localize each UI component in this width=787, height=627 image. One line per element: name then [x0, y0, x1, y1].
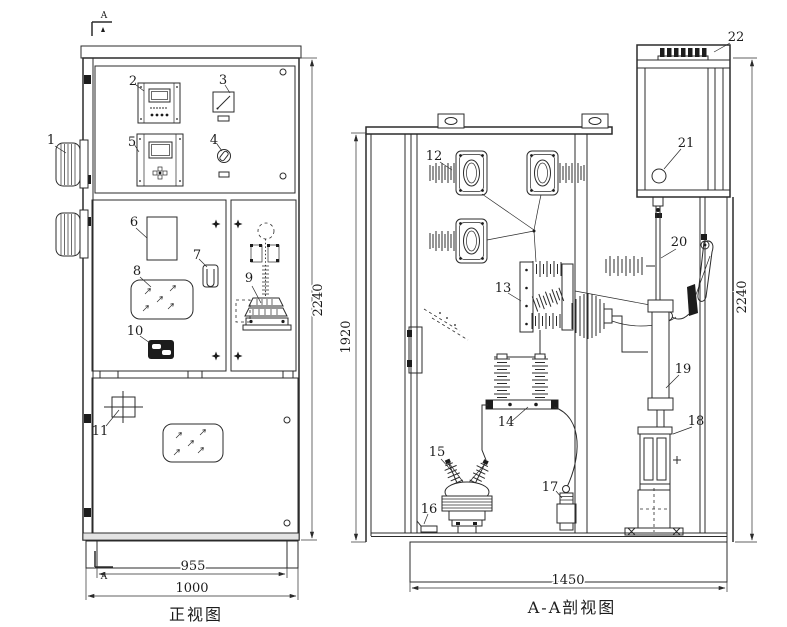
- part-label-3: 3: [219, 73, 227, 88]
- part-label-22: 22: [728, 30, 745, 45]
- part-label-13: 13: [495, 281, 512, 296]
- instrument-panel: [95, 66, 295, 193]
- busbar-14: [482, 330, 577, 487]
- middle-door-right: [231, 200, 296, 371]
- part-label-5: 5: [128, 135, 136, 150]
- svg-text:955: 955: [181, 559, 206, 574]
- part-label-15: 15: [429, 445, 446, 460]
- door-handle-7: [199, 259, 218, 287]
- caption-front-view: 正视图: [169, 605, 223, 624]
- horizontal-bushing: [606, 256, 655, 276]
- svg-text:1920: 1920: [339, 320, 354, 353]
- part-label-21: 21: [678, 136, 695, 151]
- socket-10: [140, 336, 174, 359]
- section-cut-marker-top: A: [92, 11, 112, 36]
- section-view: 21 22 12 13: [339, 30, 757, 617]
- svg-text:2240: 2240: [735, 280, 750, 313]
- dim-front-height: 2240: [301, 58, 326, 540]
- interlock-11: [104, 391, 143, 426]
- voltage-transformer-15: [441, 457, 492, 533]
- section-letter-bottom: A: [100, 572, 108, 582]
- part-label-12: 12: [426, 149, 443, 164]
- surge-arrester-17: [556, 486, 576, 531]
- vent-window-8: [131, 277, 193, 319]
- part-label-4: 4: [210, 133, 218, 148]
- part-label-9: 9: [245, 271, 253, 286]
- relay-device-2: [136, 83, 180, 123]
- control-knob-4: [217, 144, 231, 177]
- vent-window-bottom: [163, 424, 223, 462]
- operating-mechanism-18: [625, 427, 692, 535]
- disconnector-13: [424, 261, 573, 340]
- section-cut-marker-bottom: A: [95, 551, 113, 582]
- drawing-canvas: A A: [0, 0, 787, 627]
- bushing-group-12: [430, 151, 584, 263]
- svg-text:1000: 1000: [175, 581, 208, 596]
- inspection-window-6: [136, 217, 177, 260]
- part-label-18: 18: [688, 414, 705, 429]
- part-label-6: 6: [130, 215, 138, 230]
- part-label-16: 16: [421, 502, 438, 517]
- svg-text:1450: 1450: [551, 573, 584, 588]
- part-label-17: 17: [542, 480, 559, 495]
- part-label-11: 11: [92, 424, 109, 439]
- dim-section-height: 2240: [733, 58, 757, 542]
- switchgear-drawing: A A: [0, 0, 787, 627]
- caption-section-view: A-A剖视图: [527, 598, 617, 617]
- relay-device-5: [134, 134, 183, 186]
- svg-text:2240: 2240: [311, 283, 326, 316]
- part-label-2: 2: [129, 74, 137, 89]
- part-label-19: 19: [675, 362, 692, 377]
- part-label-7: 7: [193, 248, 201, 263]
- part-label-8: 8: [133, 264, 141, 279]
- relay-box-21: [637, 45, 730, 197]
- dim-section-inner-height: 1920: [339, 133, 366, 542]
- part-label-1: 1: [47, 133, 55, 148]
- part-label-10: 10: [127, 324, 144, 339]
- analog-meter-3: [213, 85, 234, 121]
- section-letter-top: A: [100, 11, 108, 21]
- part-label-20: 20: [671, 235, 688, 250]
- front-view: A A: [47, 11, 326, 624]
- part-label-14: 14: [498, 415, 515, 430]
